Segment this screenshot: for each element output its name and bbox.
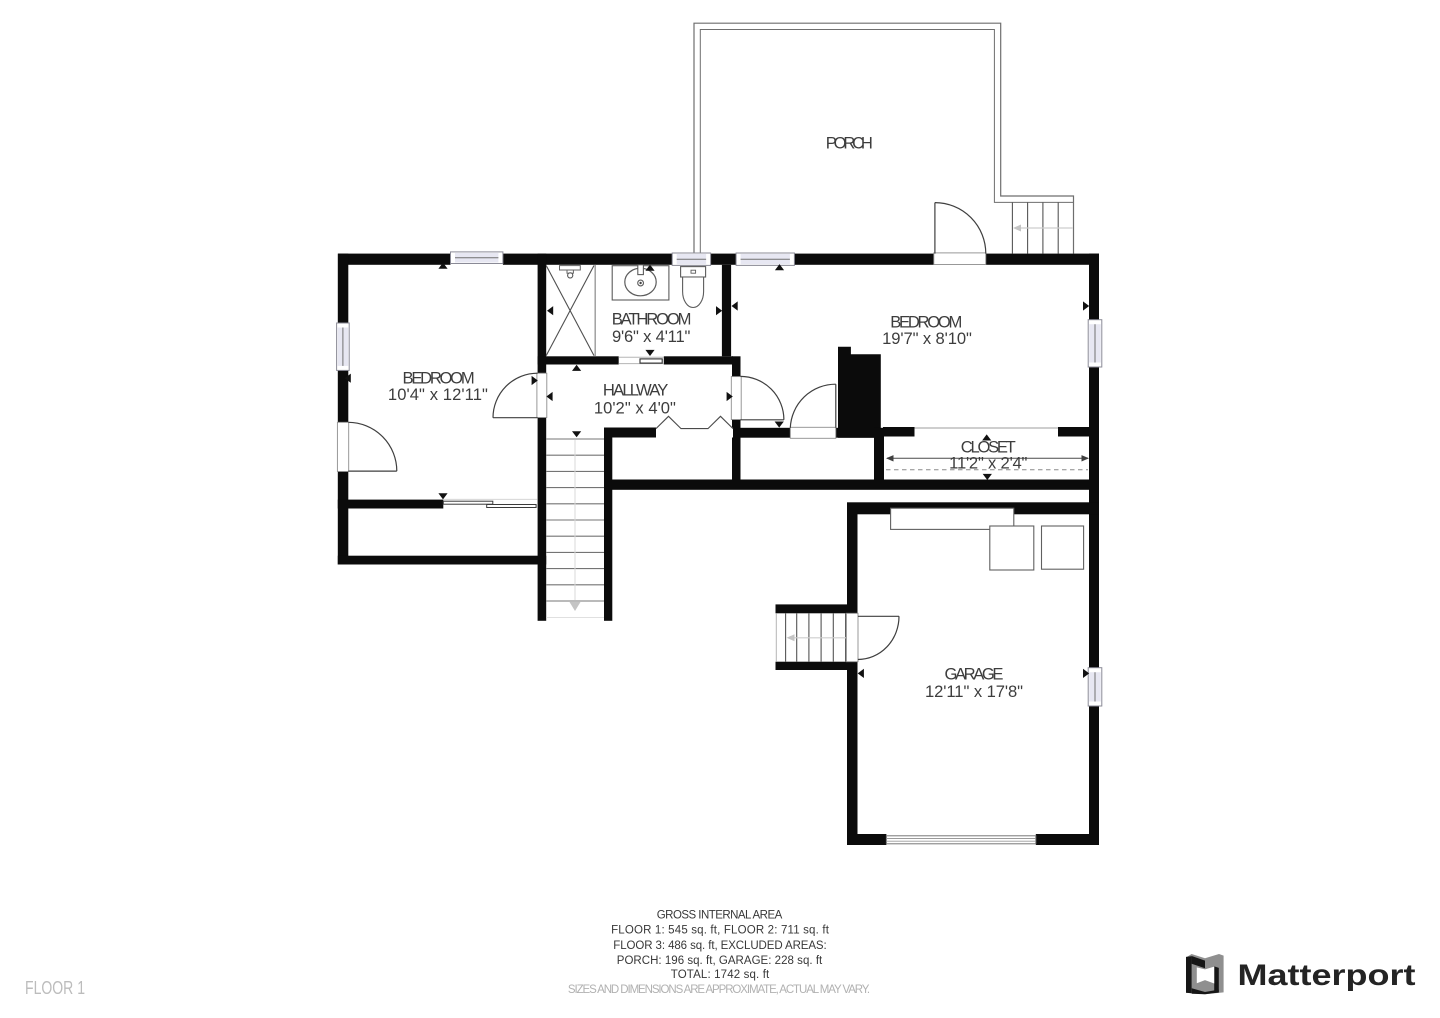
svg-text:GROSS INTERNAL AREA: GROSS INTERNAL AREA xyxy=(657,910,783,922)
svg-text:12'11" x 17'8": 12'11" x 17'8" xyxy=(925,682,1023,701)
svg-text:HALLWAY: HALLWAY xyxy=(603,380,668,399)
svg-text:10'2" x 4'0": 10'2" x 4'0" xyxy=(594,399,676,418)
svg-text:GARAGE: GARAGE xyxy=(945,665,1004,684)
svg-text:PORCH: PORCH xyxy=(826,133,873,152)
svg-text:10'4" x 12'11": 10'4" x 12'11" xyxy=(388,385,488,404)
svg-text:Matterport: Matterport xyxy=(1238,959,1416,992)
svg-text:19'7" x 8'10": 19'7" x 8'10" xyxy=(882,329,972,348)
svg-text:FLOOR 3: 486 sq. ft, EXCLUDED: FLOOR 3: 486 sq. ft, EXCLUDED AREAS: xyxy=(613,940,826,952)
svg-text:BATHROOM: BATHROOM xyxy=(612,309,692,328)
svg-text:9'6" x 4'11": 9'6" x 4'11" xyxy=(612,327,691,346)
svg-text:PORCH: 196 sq. ft, GARAGE: 228: PORCH: 196 sq. ft, GARAGE: 228 sq. ft xyxy=(617,955,823,967)
svg-text:FLOOR 1: 545 sq. ft, FLOOR 2:: FLOOR 1: 545 sq. ft, FLOOR 2: 711 sq. ft xyxy=(611,925,830,937)
svg-text:TOTAL: 1742 sq. ft: TOTAL: 1742 sq. ft xyxy=(671,969,770,981)
svg-text:FLOOR 1: FLOOR 1 xyxy=(25,978,85,998)
svg-text:11'2" x 2'4": 11'2" x 2'4" xyxy=(949,454,1027,473)
svg-text:SIZES AND DIMENSIONS ARE APPRO: SIZES AND DIMENSIONS ARE APPROXIMATE, AC… xyxy=(568,984,870,996)
